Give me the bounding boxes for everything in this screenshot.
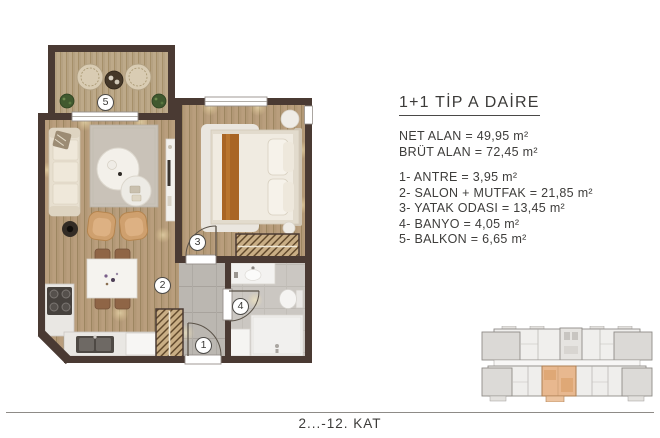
- room-area-list: 1- ANTRE = 3,95 m² 2- SALON + MUTFAK = 2…: [399, 170, 649, 248]
- tv-console: [166, 139, 175, 221]
- floor-lamp: [62, 221, 78, 237]
- key-plan-corridor: [494, 360, 640, 366]
- floor-plan-drawing: [0, 0, 340, 380]
- room-badge-balkon: 5: [97, 94, 114, 111]
- net-area-line: NET ALAN = 49,95 m²: [399, 129, 649, 145]
- living-room-window: [72, 112, 138, 121]
- apartment-type-title: 1+1 TİP A DAİRE: [399, 94, 540, 116]
- key-plan: [480, 326, 654, 402]
- room-badge-banyo: 4: [232, 298, 249, 315]
- key-plan-highlighted-unit: [542, 366, 576, 402]
- brut-area-line: BRÜT ALAN = 72,45 m²: [399, 145, 649, 161]
- key-plan-drawing: [480, 326, 654, 402]
- room-line-antre: 1- ANTRE = 3,95 m²: [399, 170, 649, 186]
- bedroom-wardrobe: [236, 234, 299, 259]
- room-line-balkon: 5- BALKON = 6,65 m²: [399, 232, 649, 248]
- room-line-salon-mutfak: 2- SALON + MUTFAK = 21,85 m²: [399, 186, 649, 202]
- key-plan-top-row: [482, 326, 652, 360]
- apartment-info-panel: 1+1 TİP A DAİRE NET ALAN = 49,95 m² BRÜT…: [399, 94, 649, 248]
- entry-wardrobe: [156, 309, 183, 358]
- room-badge-salon: 2: [154, 277, 171, 294]
- area-specs: NET ALAN = 49,95 m² BRÜT ALAN = 72,45 m²: [399, 129, 649, 160]
- bedroom-side-window: [305, 106, 313, 124]
- room-line-yatak-odasi: 3- YATAK ODASI = 13,45 m²: [399, 201, 649, 217]
- sofa: [49, 128, 80, 216]
- floorplan-page: 1 2 3 4 5 1+1 TİP A DAİRE NET ALAN = 49,…: [0, 0, 660, 438]
- room-badge-antre: 1: [195, 337, 212, 354]
- footer-divider: [6, 412, 654, 413]
- room-badge-yatak: 3: [189, 234, 206, 251]
- room-line-banyo: 4- BANYO = 4,05 m²: [399, 217, 649, 233]
- bedroom-window: [205, 97, 267, 106]
- floor-plan: 1 2 3 4 5: [0, 0, 340, 380]
- floor-range-label: 2...-12. KAT: [20, 416, 660, 431]
